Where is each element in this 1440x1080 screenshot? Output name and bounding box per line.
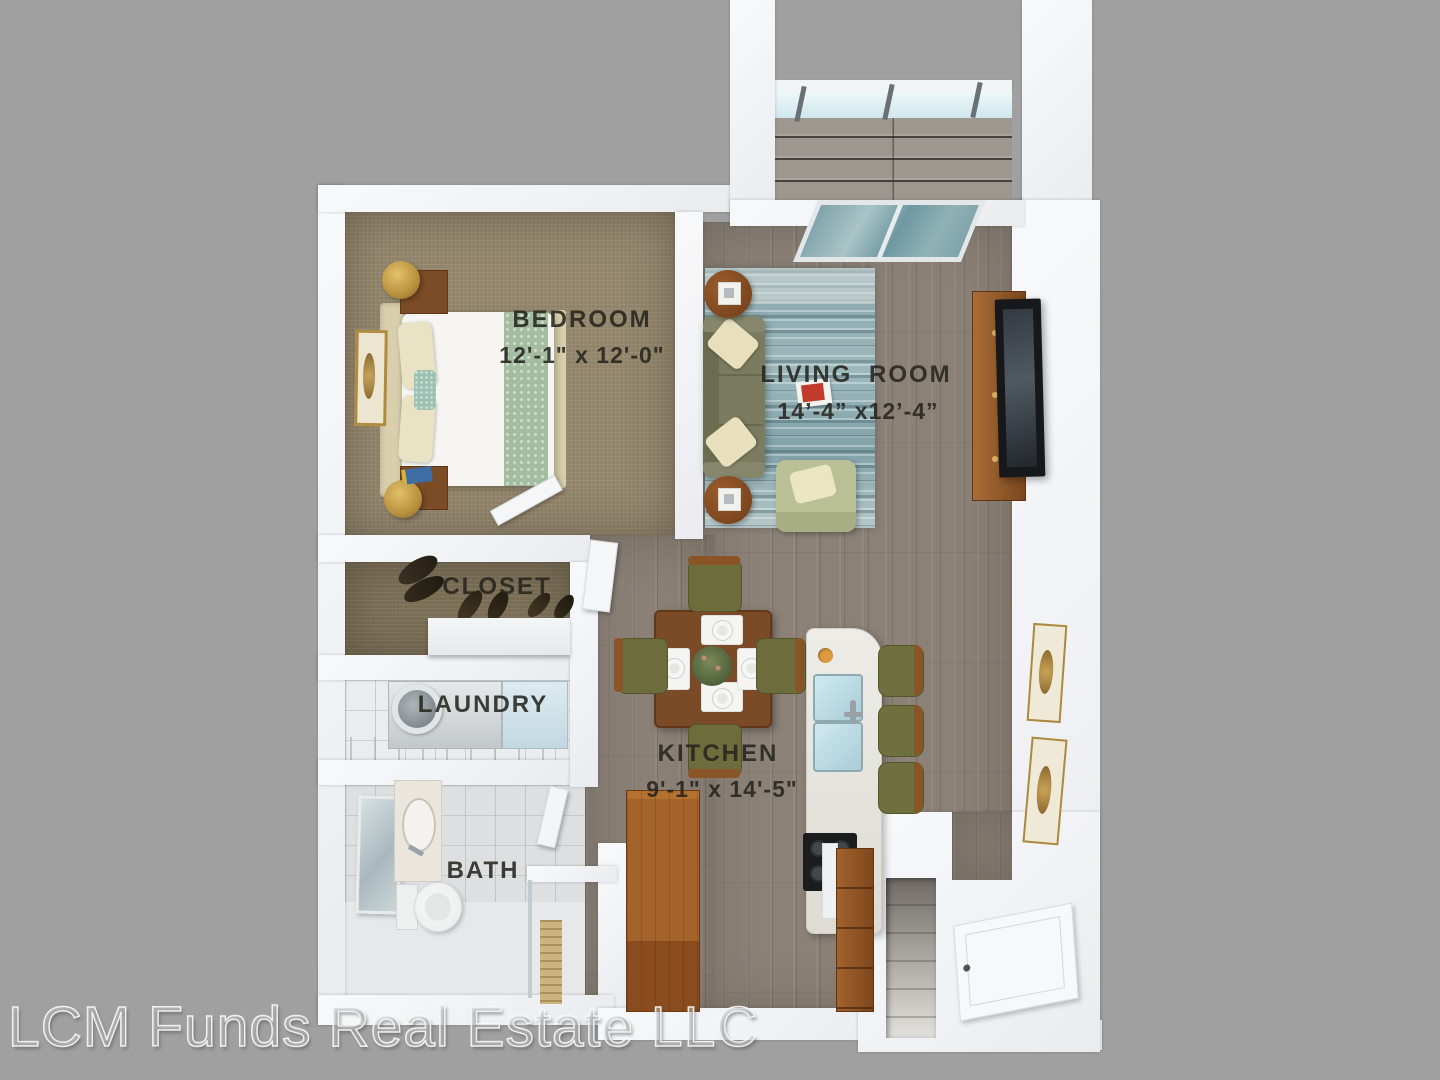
living-room-dims: 14’-4” x12’-4” bbox=[777, 398, 938, 425]
plate bbox=[712, 620, 733, 641]
kitchen-dims: 9'-1" x 14'-5" bbox=[646, 776, 798, 803]
shower-mat bbox=[540, 920, 562, 1004]
entry-wood-threshold bbox=[952, 812, 1012, 880]
stool-wood-back bbox=[914, 762, 923, 812]
living-room-window bbox=[793, 200, 986, 262]
bath-label: BATH bbox=[447, 857, 520, 885]
closet-label: CLOSET bbox=[442, 573, 551, 601]
table-decor-box bbox=[718, 282, 741, 305]
pantry-opening bbox=[886, 878, 936, 1038]
plate bbox=[712, 688, 733, 709]
living-room-label: LIVING ROOM bbox=[760, 361, 951, 389]
island-sink-basin bbox=[813, 722, 863, 772]
sofa-arm bbox=[703, 462, 765, 478]
wall-left-outer bbox=[318, 185, 345, 1025]
bath-floor-smooth bbox=[345, 902, 612, 997]
chair-wood-trim bbox=[614, 638, 623, 692]
dining-chair bbox=[618, 638, 668, 694]
bedroom-dims: 12'-1" x 12'-0" bbox=[499, 342, 664, 369]
art-medallion bbox=[1038, 649, 1055, 694]
bedroom-label: BEDROOM bbox=[512, 306, 651, 334]
vanity-sink bbox=[402, 798, 436, 852]
closet-shelf bbox=[428, 618, 570, 655]
accent-pillow bbox=[414, 370, 436, 410]
toilet-bowl bbox=[414, 882, 462, 932]
bed-footboard bbox=[552, 310, 566, 488]
bed-runner bbox=[504, 312, 548, 486]
kitchen-label: KITCHEN bbox=[658, 740, 779, 768]
wall-top-outer bbox=[318, 185, 730, 212]
wall-bedroom-living-divider bbox=[675, 212, 703, 539]
entry-door-panel-line bbox=[965, 916, 1065, 1006]
wall-bedroom-bottom bbox=[318, 535, 590, 562]
art-medallion bbox=[1035, 765, 1053, 814]
window-mullion bbox=[877, 205, 903, 257]
laundry-label: LAUNDRY bbox=[418, 691, 548, 719]
wall-closet-laundry-divider bbox=[318, 655, 572, 680]
wall-balcony-right bbox=[1022, 0, 1092, 215]
decor-box-inner bbox=[724, 288, 734, 298]
watermark: LCM Funds Real Estate LLC bbox=[8, 994, 759, 1060]
stool-wood-back bbox=[914, 645, 923, 695]
wall-balcony-left bbox=[730, 0, 775, 215]
armchair-backrest bbox=[776, 512, 856, 532]
table-centerpiece-plant bbox=[692, 646, 732, 686]
table-lamp bbox=[382, 261, 420, 299]
floor-plan: BEDROOM 12'-1" x 12'-0" LIVING ROOM 14’-… bbox=[0, 0, 1440, 1080]
fruit-dish bbox=[818, 648, 833, 663]
sofa-cushion-seam bbox=[719, 374, 763, 376]
hallway-wall-art bbox=[1027, 623, 1068, 723]
wall-mounted-tv bbox=[995, 298, 1046, 477]
balcony-deck bbox=[775, 116, 1012, 212]
chair-wood-trim bbox=[688, 556, 740, 565]
wall-shower-half bbox=[527, 866, 617, 882]
decor-box-inner bbox=[724, 494, 734, 504]
art-medallion bbox=[363, 353, 376, 399]
stool-wood-back bbox=[914, 705, 923, 755]
bedroom-wall-art bbox=[354, 330, 388, 427]
toilet-bowl-inner bbox=[425, 893, 451, 921]
island-faucet-handle bbox=[844, 712, 862, 717]
kitchen-cabinet bbox=[836, 848, 874, 1012]
shower-glass-panel bbox=[528, 880, 532, 998]
kitchen-counter-left bbox=[626, 790, 700, 1012]
console-knob bbox=[992, 456, 998, 462]
table-decor-box bbox=[718, 488, 741, 511]
chair-wood-trim bbox=[795, 638, 804, 692]
dining-chair bbox=[688, 560, 742, 612]
table-lamp bbox=[384, 480, 422, 518]
tv-screen bbox=[1003, 309, 1037, 468]
wall-laundry-bath-divider bbox=[318, 760, 572, 785]
